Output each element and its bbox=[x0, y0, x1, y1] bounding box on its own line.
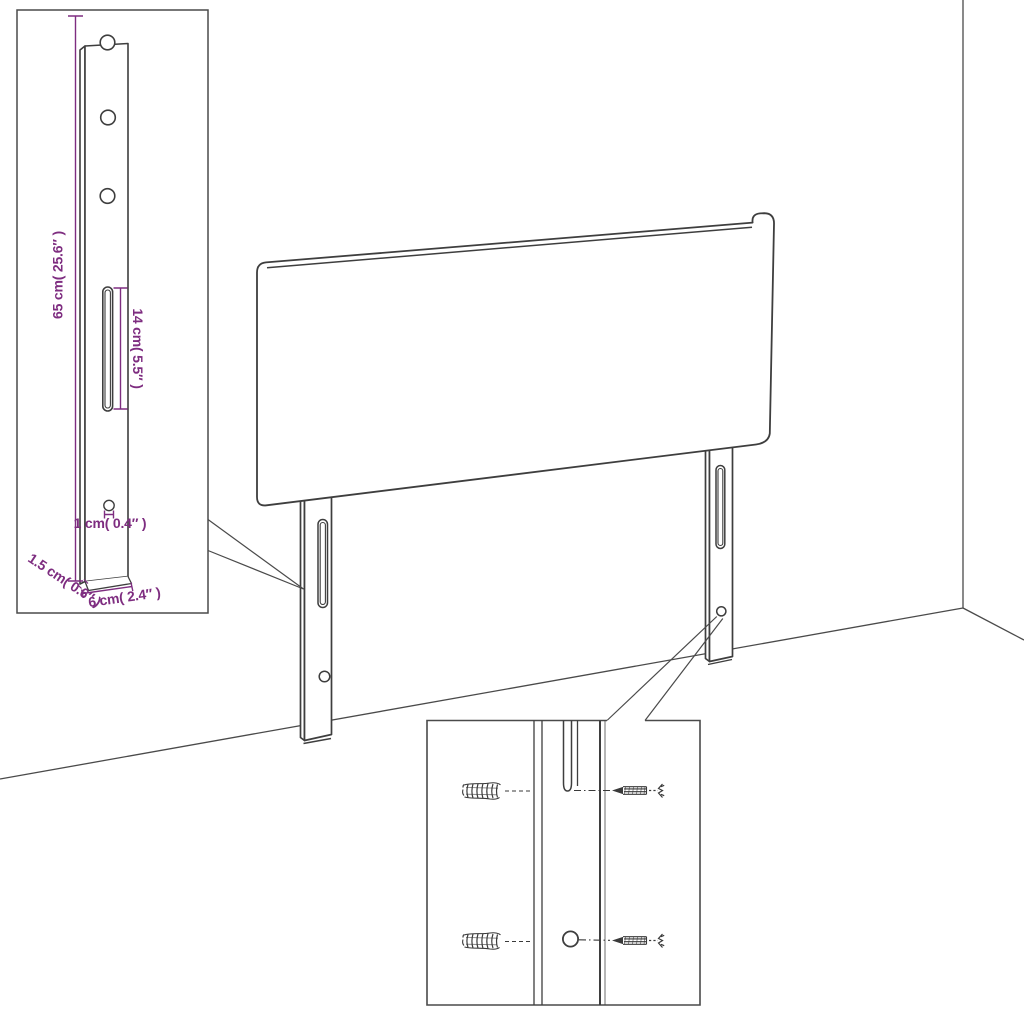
leg-detail-inset: 65 cm( 25.6″ ) 14 cm( 5.5″ ) 1 cm( 0.4″ … bbox=[17, 10, 208, 613]
headboard-panel bbox=[257, 213, 774, 505]
right-leg-slot-inner bbox=[718, 469, 723, 546]
assembly-diagram: 65 cm( 25.6″ ) 14 cm( 5.5″ ) 1 cm( 0.4″ … bbox=[0, 0, 1024, 1024]
dim-label-height: 65 cm( 25.6″ ) bbox=[50, 231, 66, 319]
assembly-diagram-page: 65 cm( 25.6″ ) 14 cm( 5.5″ ) 1 cm( 0.4″ … bbox=[0, 0, 1024, 1024]
dim-label-hole: 1 cm( 0.4″ ) bbox=[74, 515, 147, 531]
floor-line-right bbox=[963, 608, 1024, 640]
left-leg-slot-inner bbox=[320, 523, 325, 605]
mounting-detail-inset bbox=[427, 721, 700, 1006]
dim-label-slot: 14 cm( 5.5″ ) bbox=[130, 308, 146, 388]
left-leg-hole bbox=[319, 671, 330, 682]
detail-hole-bottom bbox=[100, 189, 115, 204]
detail-hole-top bbox=[100, 35, 115, 50]
left-mounting-leg bbox=[301, 490, 332, 744]
detail-slot-inner bbox=[105, 290, 110, 408]
right-mounting-leg bbox=[706, 445, 733, 665]
headboard-outline bbox=[257, 213, 774, 505]
detail-hole-middle bbox=[101, 110, 116, 125]
right-leg-hole bbox=[717, 607, 726, 616]
leg-detail-callout-lines bbox=[208, 520, 304, 590]
detail-small-hole bbox=[104, 500, 114, 510]
